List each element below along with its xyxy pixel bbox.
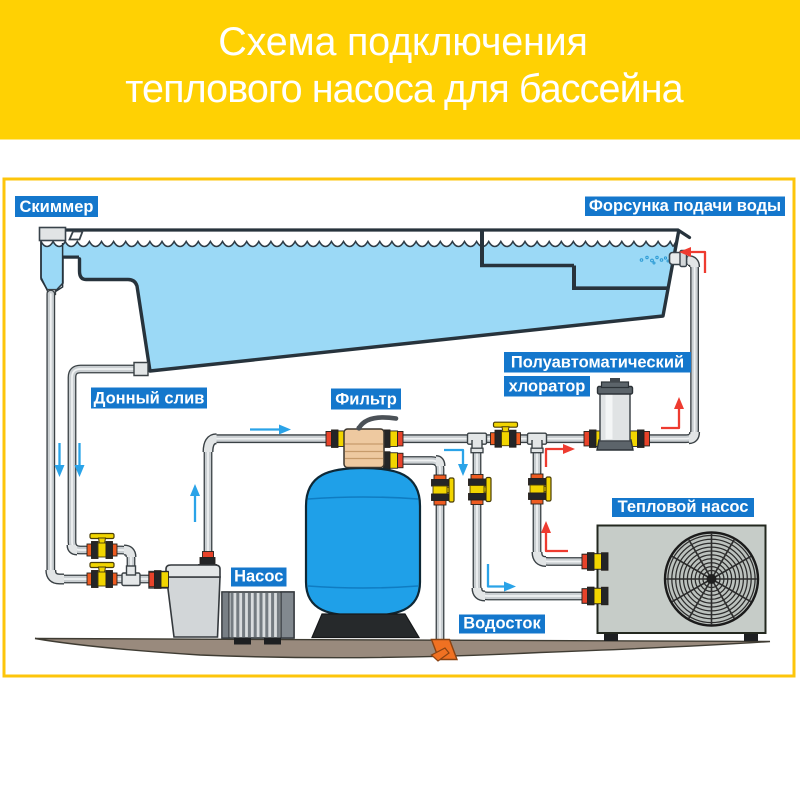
svg-text:теплового насоса для бассейна: теплового насоса для бассейна (125, 67, 683, 111)
svg-text:Фильтр: Фильтр (335, 390, 397, 408)
svg-text:хлоратор: хлоратор (509, 377, 586, 395)
svg-text:Тепловой насос: Тепловой насос (618, 498, 749, 516)
svg-text:Водосток: Водосток (463, 614, 541, 632)
svg-text:Полуавтоматический: Полуавтоматический (511, 353, 684, 371)
svg-text:Скиммер: Скиммер (20, 198, 94, 216)
svg-text:Донный слив: Донный слив (94, 389, 205, 407)
svg-text:Схема подключения: Схема подключения (218, 20, 587, 64)
svg-text:Насос: Насос (234, 567, 283, 585)
svg-text:Форсунка подачи воды: Форсунка подачи воды (589, 197, 781, 215)
